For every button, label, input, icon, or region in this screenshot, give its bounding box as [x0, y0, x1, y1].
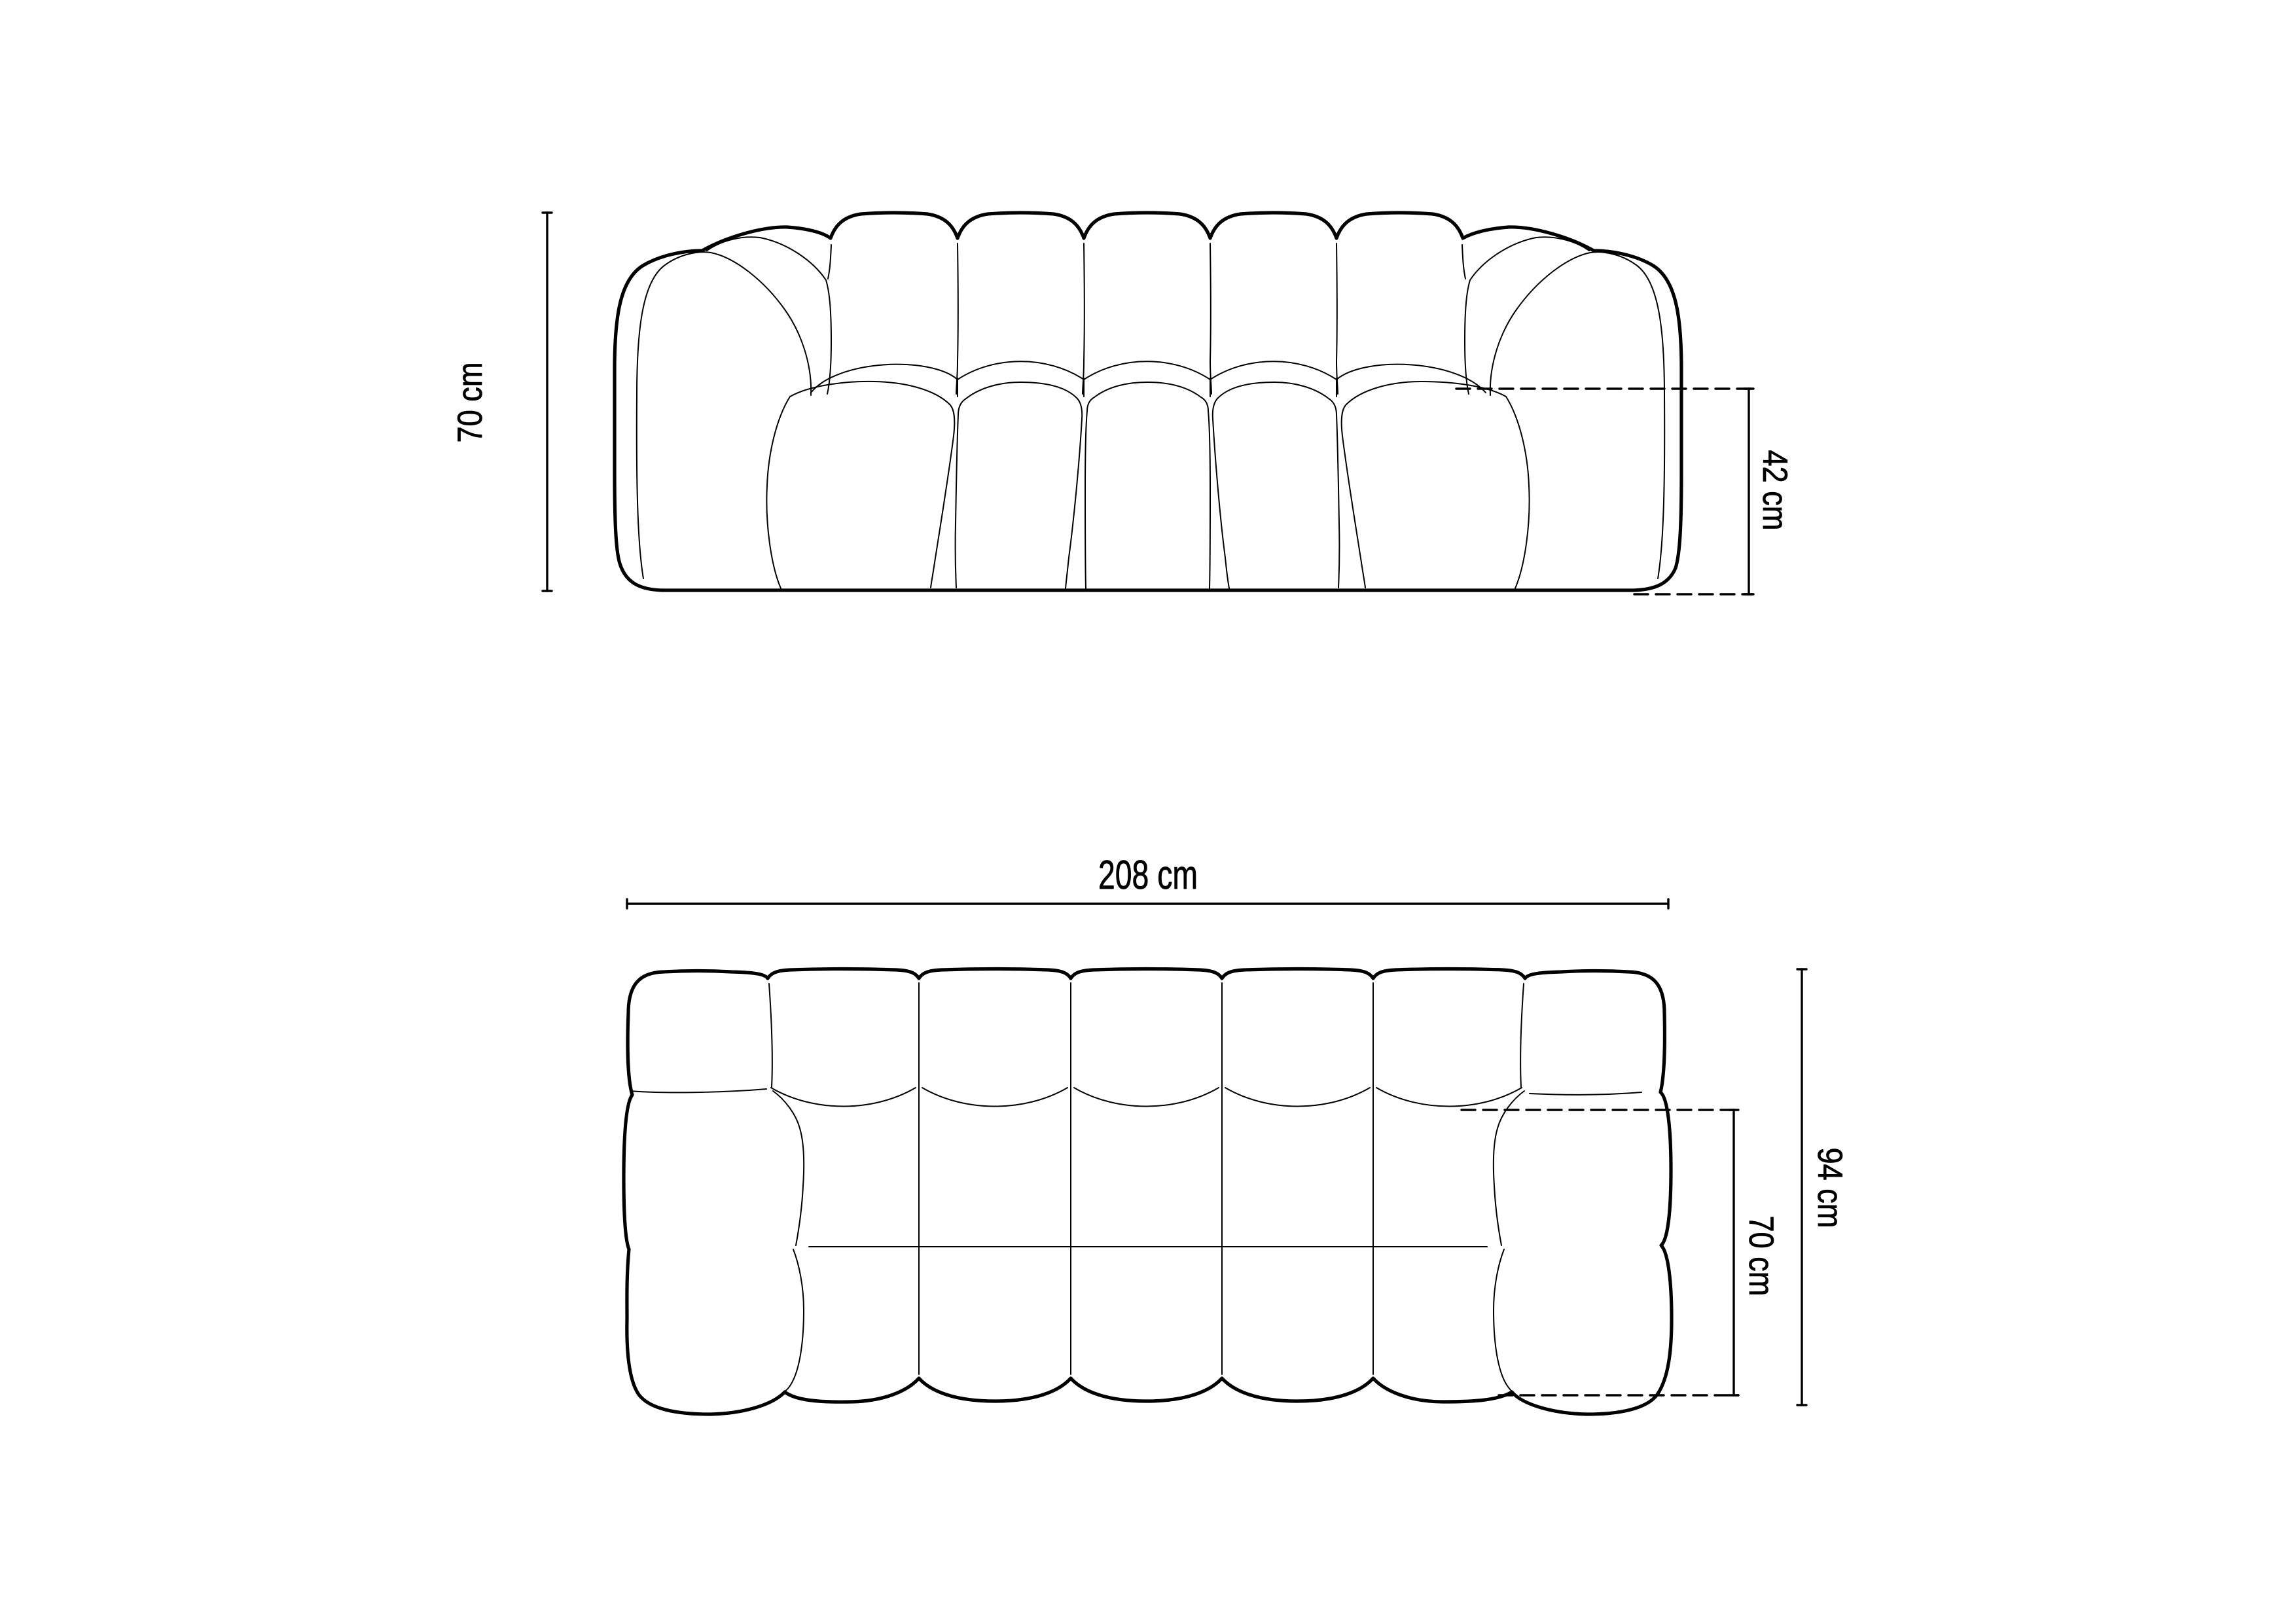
- svg-text:94 cm: 94 cm: [1810, 1148, 1849, 1228]
- svg-text:70 cm: 70 cm: [451, 363, 490, 443]
- svg-text:208 cm: 208 cm: [1098, 853, 1198, 898]
- svg-text:70 cm: 70 cm: [1742, 1216, 1780, 1296]
- svg-text:42 cm: 42 cm: [1755, 450, 1794, 531]
